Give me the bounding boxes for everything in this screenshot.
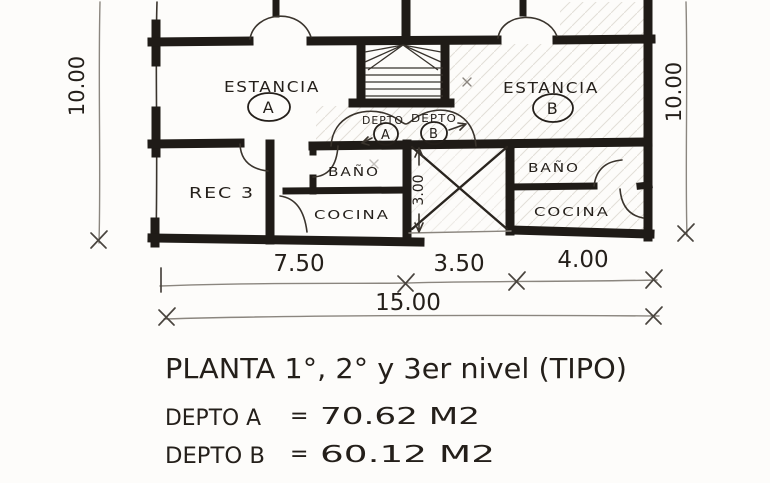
dim-10-00-right: 10.00 [662, 62, 686, 122]
area-a-equals: = [290, 404, 308, 429]
dim-10-00-left: 10.00 [65, 56, 89, 116]
area-b-equals: = [290, 442, 308, 467]
entrance-label-depto-b: DEPTO [411, 112, 457, 125]
plan-title: PLANTA 1°, 2° y 3er nivel (TIPO) [165, 352, 627, 385]
area-a-value: 70.62 M2 [320, 404, 480, 430]
dim-4-00: 4.00 [557, 247, 608, 273]
room-label-bano-a: BAÑO [328, 164, 380, 179]
dim-3-50: 3.50 [433, 251, 484, 277]
dim-7-50: 7.50 [273, 251, 324, 277]
entrance-tag-a: A [381, 128, 391, 143]
room-tag-a: A [263, 98, 275, 117]
floor-plan-sketch: ESTANCIA A ESTANCIA B REC 3 BAÑO COCINA … [0, 0, 770, 483]
staircase [365, 45, 443, 96]
dim-15-00: 15.00 [375, 290, 441, 316]
area-a-name: DEPTO A [165, 406, 261, 431]
room-label-bano-b: BAÑO [528, 160, 580, 175]
dim-3-00-shaft: 3.00 [411, 174, 427, 205]
sketch-canvas: ESTANCIA A ESTANCIA B REC 3 BAÑO COCINA … [0, 0, 770, 483]
area-b-name: DEPTO B [165, 444, 265, 469]
title-block: PLANTA 1°, 2° y 3er nivel (TIPO) DEPTO A… [165, 352, 627, 469]
room-label-cocina-b: COCINA [534, 205, 610, 219]
room-label-cocina-a: COCINA [314, 208, 390, 222]
entrance-label-depto-a: DEPTO [362, 114, 404, 127]
room-label-rec-3: REC 3 [189, 184, 255, 202]
area-b-value: 60.12 M2 [320, 442, 495, 468]
entrance-tag-b: B [429, 127, 439, 142]
room-tag-b: B [547, 99, 559, 118]
